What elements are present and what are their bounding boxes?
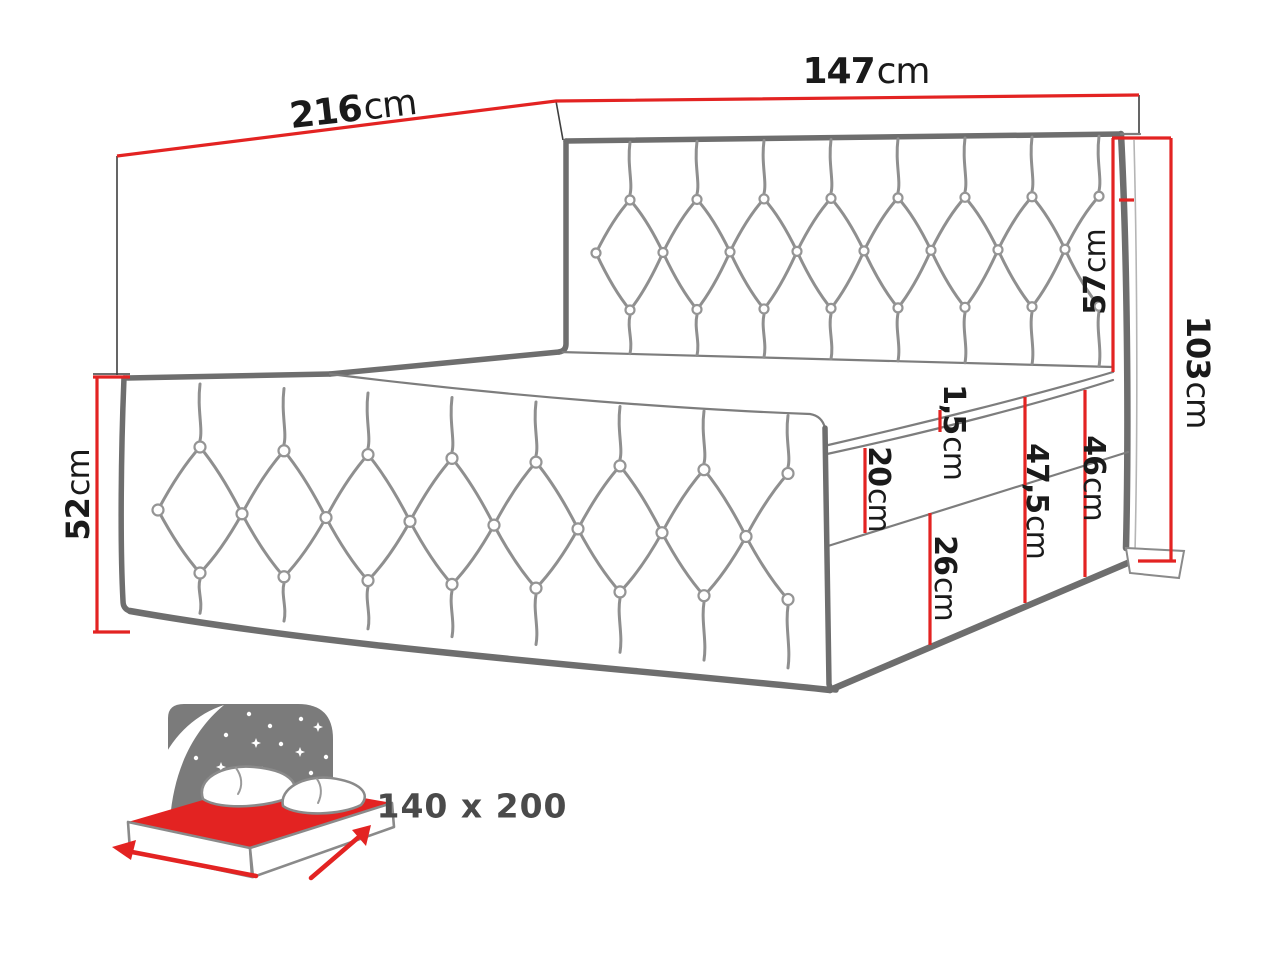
tufting-button [626,196,635,205]
headboard-right-edge [1121,134,1127,548]
tufting-button [657,527,668,538]
tufting-button [531,457,542,468]
tufting-button [827,194,836,203]
tufting-button [783,468,794,479]
footboard-bottom-edge [130,611,830,690]
headboard-top-edge [566,134,1121,141]
mattress-left-edge [330,352,559,374]
tufting-button [1028,192,1037,201]
tufting-button [699,590,710,601]
tufting-button [195,442,206,453]
tufting-button [994,245,1003,254]
pillow-icon [202,767,295,807]
tufting-button [894,193,903,202]
bed-dimension-diagram: 216cm 147cm 57cm 103cm 52cm 1,5cm 20cm 2… [0,0,1272,954]
tufting-button [615,460,626,471]
tufting-button [592,249,601,258]
tufting-button [1028,302,1037,311]
footboard-top-edge [330,374,825,428]
dim-label-overall-height: 103cm [1182,316,1214,429]
tufting-button [693,195,702,204]
tufting-button [363,449,374,460]
dim-label-headboard-height: 57cm [1081,229,1111,314]
tufting-button [489,520,500,531]
tufting-button [279,445,290,456]
dim-label-base: 47,5cm [1021,443,1051,559]
tufting-button [827,304,836,313]
tufting-button [363,575,374,586]
headboard-depth-line [1134,140,1137,552]
dim-label-mattress: 20cm [863,446,893,531]
tufting-button [405,516,416,527]
tufting-button [760,304,769,313]
tufting-button [699,464,710,475]
width-arrowhead-icon [112,840,136,860]
tufting-button [1095,192,1104,201]
dim-label-side-rail: 46cm [1078,435,1108,520]
bed-leg [1126,548,1184,578]
tufting-button [760,194,769,203]
tufting-button [573,523,584,534]
tufting-button [693,305,702,314]
headboard-tufting [592,136,1104,366]
tufting-button [961,193,970,202]
tufting-button [783,594,794,605]
bed-size-icon [112,704,394,878]
tufting-button [726,247,735,256]
footboard-tufting [153,384,794,668]
tufting-button [615,586,626,597]
dim-label-width: 147cm [802,54,929,90]
tufting-button [860,246,869,255]
size-label: 140 x 200 [376,787,567,826]
headboard-left-edge [559,141,566,352]
dim-label-footboard-height: 52cm [62,449,94,540]
tufting-button [153,505,164,516]
mattress-lines [330,352,1128,546]
tufting-button [531,583,542,594]
tufting-button [741,531,752,542]
tufting-button [894,303,903,312]
tufting-button [321,512,332,523]
footboard-left-edge [121,378,130,611]
headboard-bottom-line [559,352,1113,367]
tufting-button [195,568,206,579]
dim-line-length-width [117,95,1139,156]
tufting-button [659,248,668,257]
tufting-button [626,306,635,315]
tufting-button [279,571,290,582]
footboard-right-edge [825,428,836,690]
dim-label-lower-box: 26cm [929,535,959,620]
footboard-top-edge-thick [124,374,330,378]
tufting-button [237,508,248,519]
tufting-button [793,247,802,256]
dimension-lines [93,95,1176,645]
tufting-button [1061,245,1070,254]
dim-label-topper: 1,5cm [938,384,968,480]
side-bottom-edge [830,562,1130,690]
tufting-button [961,303,970,312]
tufting-button [447,453,458,464]
tufting-button [927,246,936,255]
tufting-button [447,579,458,590]
